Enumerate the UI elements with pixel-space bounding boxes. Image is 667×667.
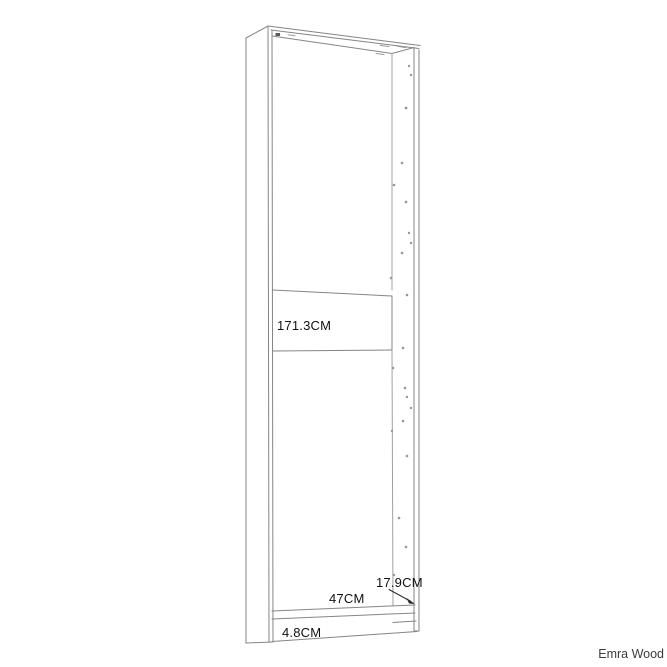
height-dimension-label: 171.3CM xyxy=(277,319,331,332)
right-panel-lines xyxy=(392,48,419,632)
width-dimension-label: 47CM xyxy=(329,592,364,605)
brand-watermark: Emra Wood xyxy=(598,648,664,661)
depth-dimension-label: 17.9CM xyxy=(376,576,423,589)
base-height-dimension-label: 4.8CM xyxy=(282,626,321,639)
top-panel-lines xyxy=(268,26,420,55)
product-diagram-page: 171.3CM 47CM 17.9CM 4.8CM Emra Wood xyxy=(0,0,667,667)
cam-lock-mark xyxy=(276,33,281,36)
left-panel-lines xyxy=(246,26,273,643)
shelf-pin-holes xyxy=(390,65,412,576)
cabinet-line-drawing xyxy=(0,0,667,667)
